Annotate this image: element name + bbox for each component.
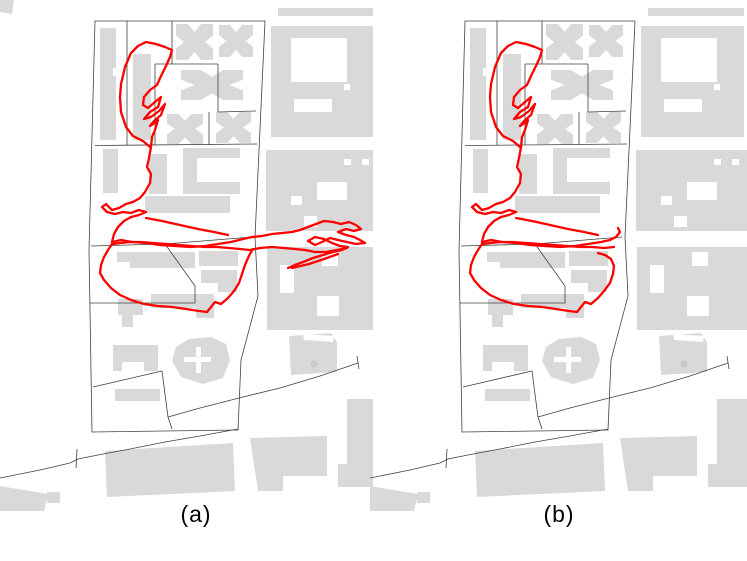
wedge-sw [370, 486, 418, 511]
block-s1 [620, 436, 697, 491]
block-ne-gap [344, 84, 350, 90]
block-ne-notch [294, 99, 332, 112]
slab-lower-3 [571, 270, 607, 292]
u-building-courtyard [567, 158, 610, 182]
gps-track-segment [516, 218, 598, 235]
block-s2 [105, 443, 235, 497]
block-se-gap1 [280, 265, 294, 293]
corner-blob [0, 0, 14, 14]
block-ne-courtyard [291, 38, 347, 82]
h-building [181, 70, 243, 100]
block-e-gap1 [687, 182, 717, 200]
block-s3 [708, 464, 747, 487]
block-e2 [717, 399, 747, 465]
road-tick [76, 449, 77, 468]
bowtie-building-2 [219, 25, 253, 57]
buildings-layer [0, 0, 373, 511]
block-e-gap2 [661, 196, 672, 205]
bowtie-building-4 [586, 112, 621, 143]
h-building [551, 70, 613, 100]
panel-caption-a: (a) [180, 501, 211, 528]
bar-ne [278, 8, 373, 16]
block-e-gap5 [732, 159, 739, 165]
map-canvas-a [0, 0, 373, 515]
block-ne-courtyard [661, 38, 717, 82]
slab-lower-3 [201, 270, 237, 292]
road-diagonal-tick [357, 356, 359, 369]
slab-thin [115, 389, 160, 401]
slab-sw [483, 345, 528, 371]
divider-top [465, 144, 627, 146]
bowtie-building-1 [546, 24, 583, 60]
lot-line-6 [218, 111, 256, 112]
tower-nw [470, 28, 486, 140]
panel-caption-b: (b) [543, 501, 574, 528]
block-e-gap4 [344, 159, 351, 165]
road-diagonal-tick [727, 356, 729, 369]
castle-cross-v [196, 347, 201, 373]
bowtie-building-3 [167, 114, 203, 144]
u-building-courtyard [197, 158, 240, 182]
lot-line-6 [588, 111, 626, 112]
roof-dot [311, 361, 318, 368]
bowtie-building-4 [216, 112, 251, 143]
block-e-gap1 [317, 182, 347, 200]
slab-lower-1 [487, 252, 565, 268]
block-se-gap3 [687, 296, 709, 316]
slab-lower-1 [117, 252, 195, 268]
block-ne-notch [664, 99, 702, 112]
tower-nw [100, 28, 116, 140]
tower-n [133, 54, 151, 140]
block-e-gap4 [714, 159, 721, 165]
tower-n [503, 54, 521, 140]
block-s3 [338, 464, 373, 487]
wide-slab [515, 196, 600, 213]
block-se-gap1 [650, 265, 664, 293]
block-e-gap5 [362, 159, 369, 165]
bowtie-building-1 [176, 24, 213, 60]
block-s2 [475, 443, 605, 497]
block-ne-gap [714, 84, 720, 90]
slab-lower-2 [199, 251, 238, 266]
block-s1 [250, 436, 327, 491]
map-canvas-b [370, 0, 747, 515]
castle-cross-v [566, 347, 571, 373]
road-tick [446, 449, 447, 468]
gps-track-segment [146, 218, 228, 235]
bowtie-building-3 [537, 114, 573, 144]
trajectory-map-figure: (a) (b) [0, 0, 747, 561]
wedge-sw [0, 486, 48, 511]
block-e-gap3 [674, 216, 687, 227]
block-se-gap2 [692, 252, 708, 266]
slab-thin [485, 389, 530, 401]
tower-mid [473, 149, 488, 193]
square-sw [47, 492, 60, 503]
divider-top [95, 144, 257, 146]
block-e-gap2 [291, 196, 302, 205]
bowtie-building-2 [589, 25, 623, 57]
slab-sw [113, 345, 158, 371]
bar-ne [648, 8, 744, 16]
roof-dot [681, 361, 688, 368]
square-sw [417, 492, 430, 503]
buildings-layer [370, 8, 747, 511]
block-se-gap3 [317, 296, 339, 316]
wide-slab [145, 196, 230, 213]
map-panel-b [370, 0, 747, 515]
tower-mid [103, 149, 118, 193]
map-panel-a [0, 0, 373, 515]
